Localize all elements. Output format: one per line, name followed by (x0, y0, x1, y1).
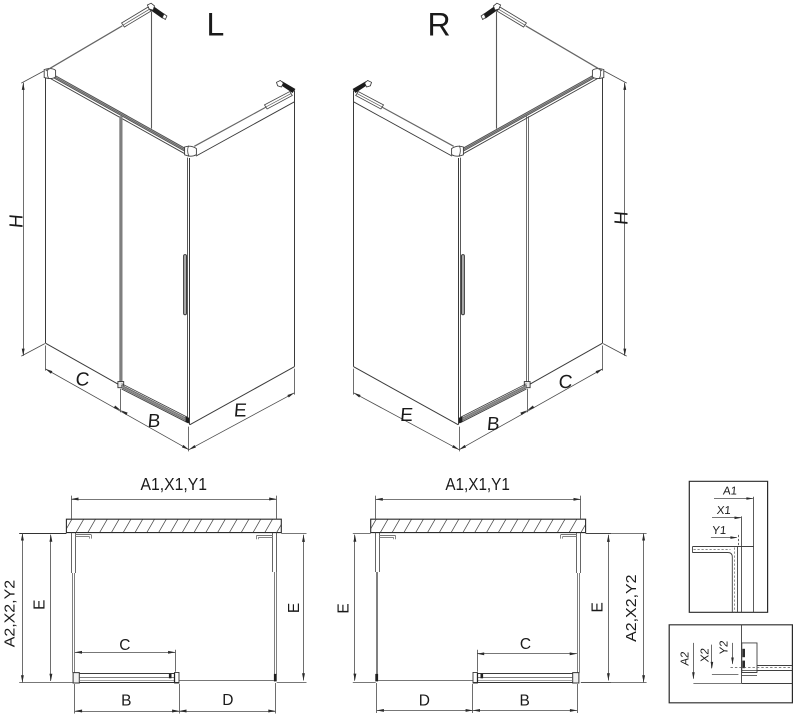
svg-text:A2: A2 (679, 651, 691, 666)
svg-text:E: E (32, 600, 49, 610)
svg-text:B: B (520, 693, 530, 710)
svg-text:E: E (286, 603, 303, 613)
svg-text:Y2: Y2 (719, 640, 731, 655)
svg-text:R: R (428, 7, 451, 43)
svg-text:D: D (419, 693, 430, 710)
svg-text:X2: X2 (699, 648, 711, 663)
svg-text:D: D (222, 692, 233, 709)
svg-text:H: H (7, 213, 28, 229)
svg-text:A1: A1 (722, 486, 737, 498)
svg-text:C: C (520, 636, 531, 653)
svg-text:X1: X1 (716, 505, 731, 517)
svg-text:E: E (399, 405, 413, 426)
svg-text:B: B (486, 414, 500, 435)
svg-text:A1,X1,Y1: A1,X1,Y1 (141, 474, 208, 494)
svg-text:H: H (612, 210, 633, 226)
svg-text:E: E (589, 602, 606, 612)
svg-text:A2,X2,Y2: A2,X2,Y2 (623, 575, 640, 642)
svg-text:E: E (233, 401, 247, 422)
svg-text:A1,X1,Y1: A1,X1,Y1 (445, 474, 510, 494)
svg-text:B: B (147, 411, 161, 432)
svg-text:C: C (558, 372, 574, 393)
svg-text:C: C (119, 637, 130, 654)
svg-text:L: L (207, 7, 225, 43)
svg-text:B: B (121, 692, 131, 709)
svg-text:C: C (75, 370, 91, 391)
svg-text:Y1: Y1 (712, 525, 727, 537)
svg-text:A2,X2,Y2: A2,X2,Y2 (2, 580, 19, 647)
svg-text:E: E (336, 603, 353, 613)
